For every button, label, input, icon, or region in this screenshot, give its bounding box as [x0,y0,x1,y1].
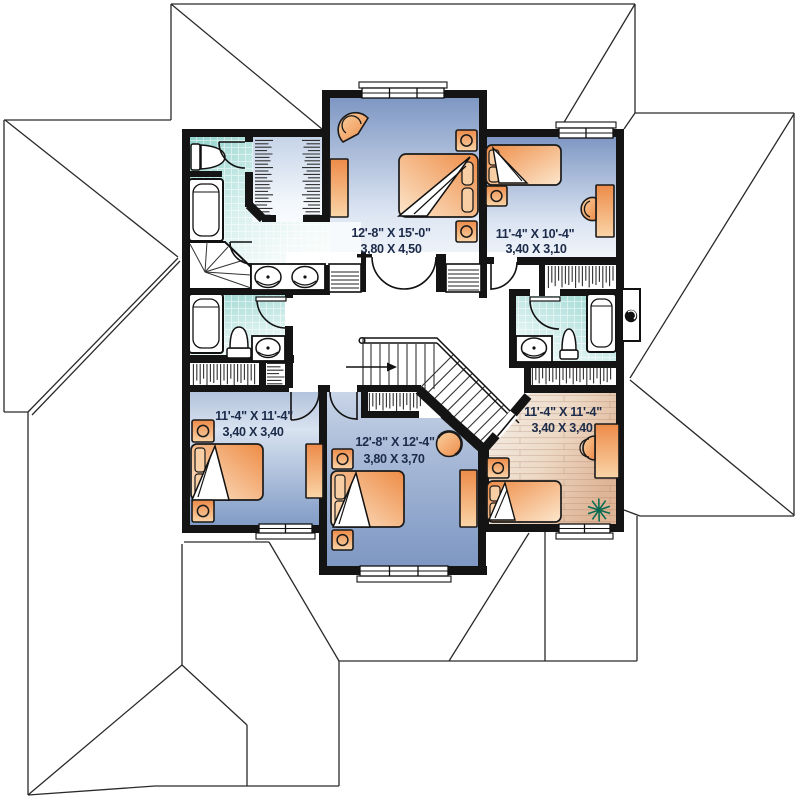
svg-text:3,40 X 3,40: 3,40 X 3,40 [222,425,283,439]
svg-text:12'-8" X 15'-0": 12'-8" X 15'-0" [351,226,431,240]
svg-text:3,40 X 3,10: 3,40 X 3,10 [505,242,566,256]
svg-text:11'-4" X 11'-4": 11'-4" X 11'-4" [524,405,602,419]
svg-text:12'-8" X 12'-4": 12'-8" X 12'-4" [355,435,435,449]
svg-text:11'-4" X 10'-4": 11'-4" X 10'-4" [496,227,575,241]
svg-text:11'-4" X 11'-4": 11'-4" X 11'-4" [215,409,293,423]
svg-text:3,80 X 4,50: 3,80 X 4,50 [360,242,421,256]
svg-text:3,40 X 3,40: 3,40 X 3,40 [531,421,592,435]
svg-text:3,80 X 3,70: 3,80 X 3,70 [363,452,424,466]
